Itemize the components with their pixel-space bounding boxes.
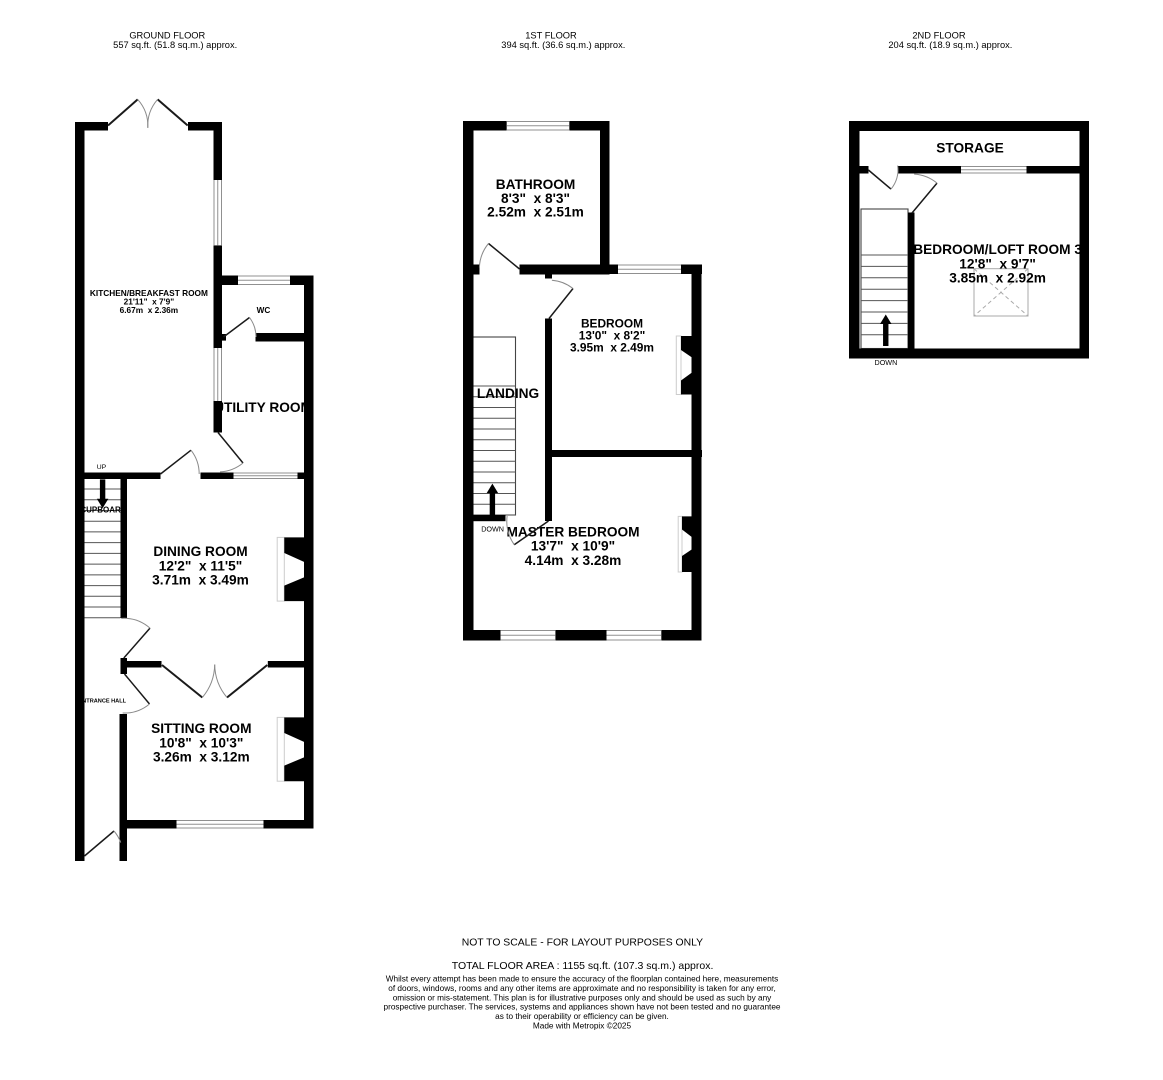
svg-text:LANDING: LANDING <box>477 386 539 401</box>
svg-text:6.67m x 2.36m: 6.67m x 2.36m <box>120 305 179 315</box>
svg-text:DOWN: DOWN <box>481 525 504 534</box>
svg-text:DINING ROOM: DINING ROOM <box>153 544 247 559</box>
svg-text:12'2" x 11'5": 12'2" x 11'5" <box>159 558 242 573</box>
svg-text:UTILITY ROOM: UTILITY ROOM <box>214 400 312 415</box>
svg-text:10'8" x 10'3": 10'8" x 10'3" <box>159 735 243 750</box>
svg-text:2.52m x 2.51m: 2.52m x 2.51m <box>487 205 584 220</box>
svg-text:3.71m x 3.49m: 3.71m x 3.49m <box>152 573 249 588</box>
svg-text:BATHROOM: BATHROOM <box>496 177 576 192</box>
svg-text:NOT TO SCALE - FOR LAYOUT PURP: NOT TO SCALE - FOR LAYOUT PURPOSES ONLY <box>462 937 703 948</box>
svg-text:omission or mis-statement. Thi: omission or mis-statement. This plan is … <box>393 993 772 1002</box>
svg-text:557 sq.ft. (51.8 sq.m.) approx: 557 sq.ft. (51.8 sq.m.) approx. <box>113 40 237 50</box>
svg-text:Made with Metropix ©2025: Made with Metropix ©2025 <box>533 1022 632 1031</box>
svg-text:394 sq.ft. (36.6 sq.m.) approx: 394 sq.ft. (36.6 sq.m.) approx. <box>501 40 625 50</box>
svg-text:STORAGE: STORAGE <box>936 141 1003 156</box>
svg-text:DOWN: DOWN <box>875 358 898 367</box>
svg-text:3.85m x 2.92m: 3.85m x 2.92m <box>949 270 1046 285</box>
svg-text:TOTAL FLOOR AREA : 1155 sq.ft.: TOTAL FLOOR AREA : 1155 sq.ft. (107.3 sq… <box>452 960 714 972</box>
svg-text:8'3" x 8'3": 8'3" x 8'3" <box>501 191 570 206</box>
svg-text:as to their operability or eff: as to their operability or efficiency ca… <box>495 1012 669 1021</box>
svg-text:BEDROOM/LOFT ROOM 3: BEDROOM/LOFT ROOM 3 <box>913 242 1082 257</box>
svg-text:MASTER BEDROOM: MASTER BEDROOM <box>506 525 639 540</box>
svg-text:WC: WC <box>257 306 271 315</box>
svg-text:4.14m x 3.28m: 4.14m x 3.28m <box>525 553 622 568</box>
svg-text:SITTING ROOM: SITTING ROOM <box>151 721 251 736</box>
svg-text:3.95m x 2.49m: 3.95m x 2.49m <box>570 340 654 354</box>
svg-text:CUPBOARD: CUPBOARD <box>80 506 126 515</box>
svg-text:13'7" x 10'9": 13'7" x 10'9" <box>531 539 615 554</box>
svg-text:prospective purchaser. The ser: prospective purchaser. The services, sys… <box>383 1003 780 1012</box>
svg-text:204 sq.ft. (18.9 sq.m.) approx: 204 sq.ft. (18.9 sq.m.) approx. <box>888 40 1012 50</box>
svg-text:12'8" x 9'7": 12'8" x 9'7" <box>959 256 1036 271</box>
svg-text:Whilst every attempt has been: Whilst every attempt has been made to en… <box>386 975 779 984</box>
svg-text:ENTRANCE HALL: ENTRANCE HALL <box>79 698 127 704</box>
svg-text:UP: UP <box>97 464 107 471</box>
svg-text:3.26m x 3.12m: 3.26m x 3.12m <box>153 750 250 765</box>
svg-text:of doors, windows, rooms and a: of doors, windows, rooms and any other i… <box>388 984 775 993</box>
